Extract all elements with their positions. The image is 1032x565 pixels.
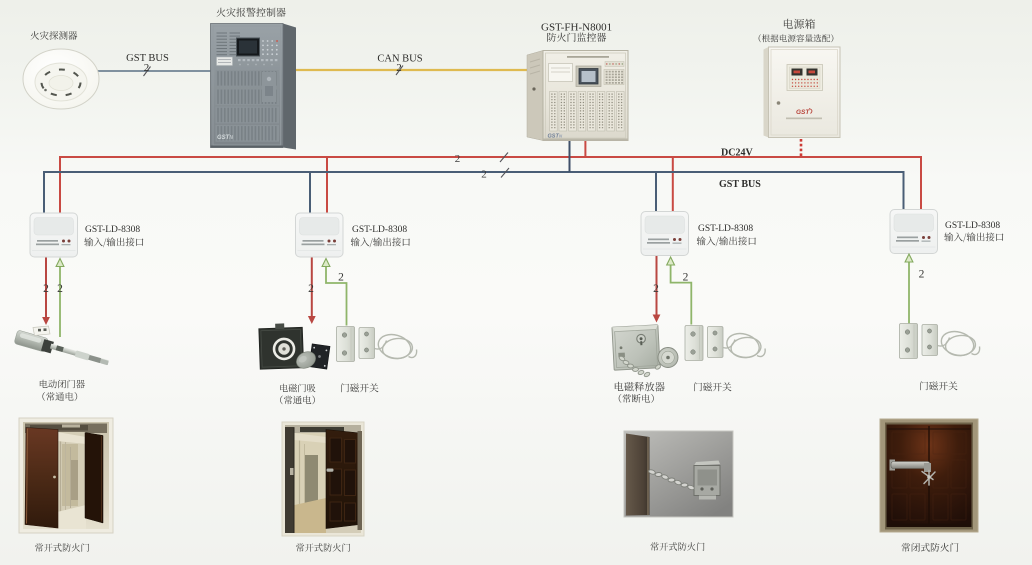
- svg-text:2: 2: [57, 283, 63, 295]
- svg-text:2: 2: [653, 283, 659, 295]
- svg-text:GSTN: GSTN: [217, 135, 233, 141]
- svg-text:2: 2: [308, 283, 314, 295]
- svg-text:GST-LD-8308: GST-LD-8308: [85, 225, 140, 235]
- svg-text:2: 2: [481, 169, 487, 181]
- svg-text:2: 2: [338, 272, 344, 284]
- svg-text:2: 2: [144, 62, 150, 74]
- svg-text:2: 2: [43, 283, 49, 295]
- svg-text:2: 2: [683, 272, 689, 284]
- svg-text:GST: GST: [796, 109, 810, 116]
- svg-text:GST-LD-8308: GST-LD-8308: [945, 221, 1000, 231]
- svg-text:2: 2: [455, 153, 461, 165]
- svg-text:GST-FH-N8001: GST-FH-N8001: [541, 22, 612, 34]
- svg-text:2: 2: [919, 269, 925, 281]
- svg-text:GST-LD-8308: GST-LD-8308: [352, 225, 407, 235]
- svg-text:DC24V: DC24V: [721, 148, 753, 159]
- svg-text:GST-LD-8308: GST-LD-8308: [698, 224, 753, 234]
- svg-text:GST BUS: GST BUS: [719, 179, 761, 190]
- svg-text:2: 2: [396, 62, 402, 74]
